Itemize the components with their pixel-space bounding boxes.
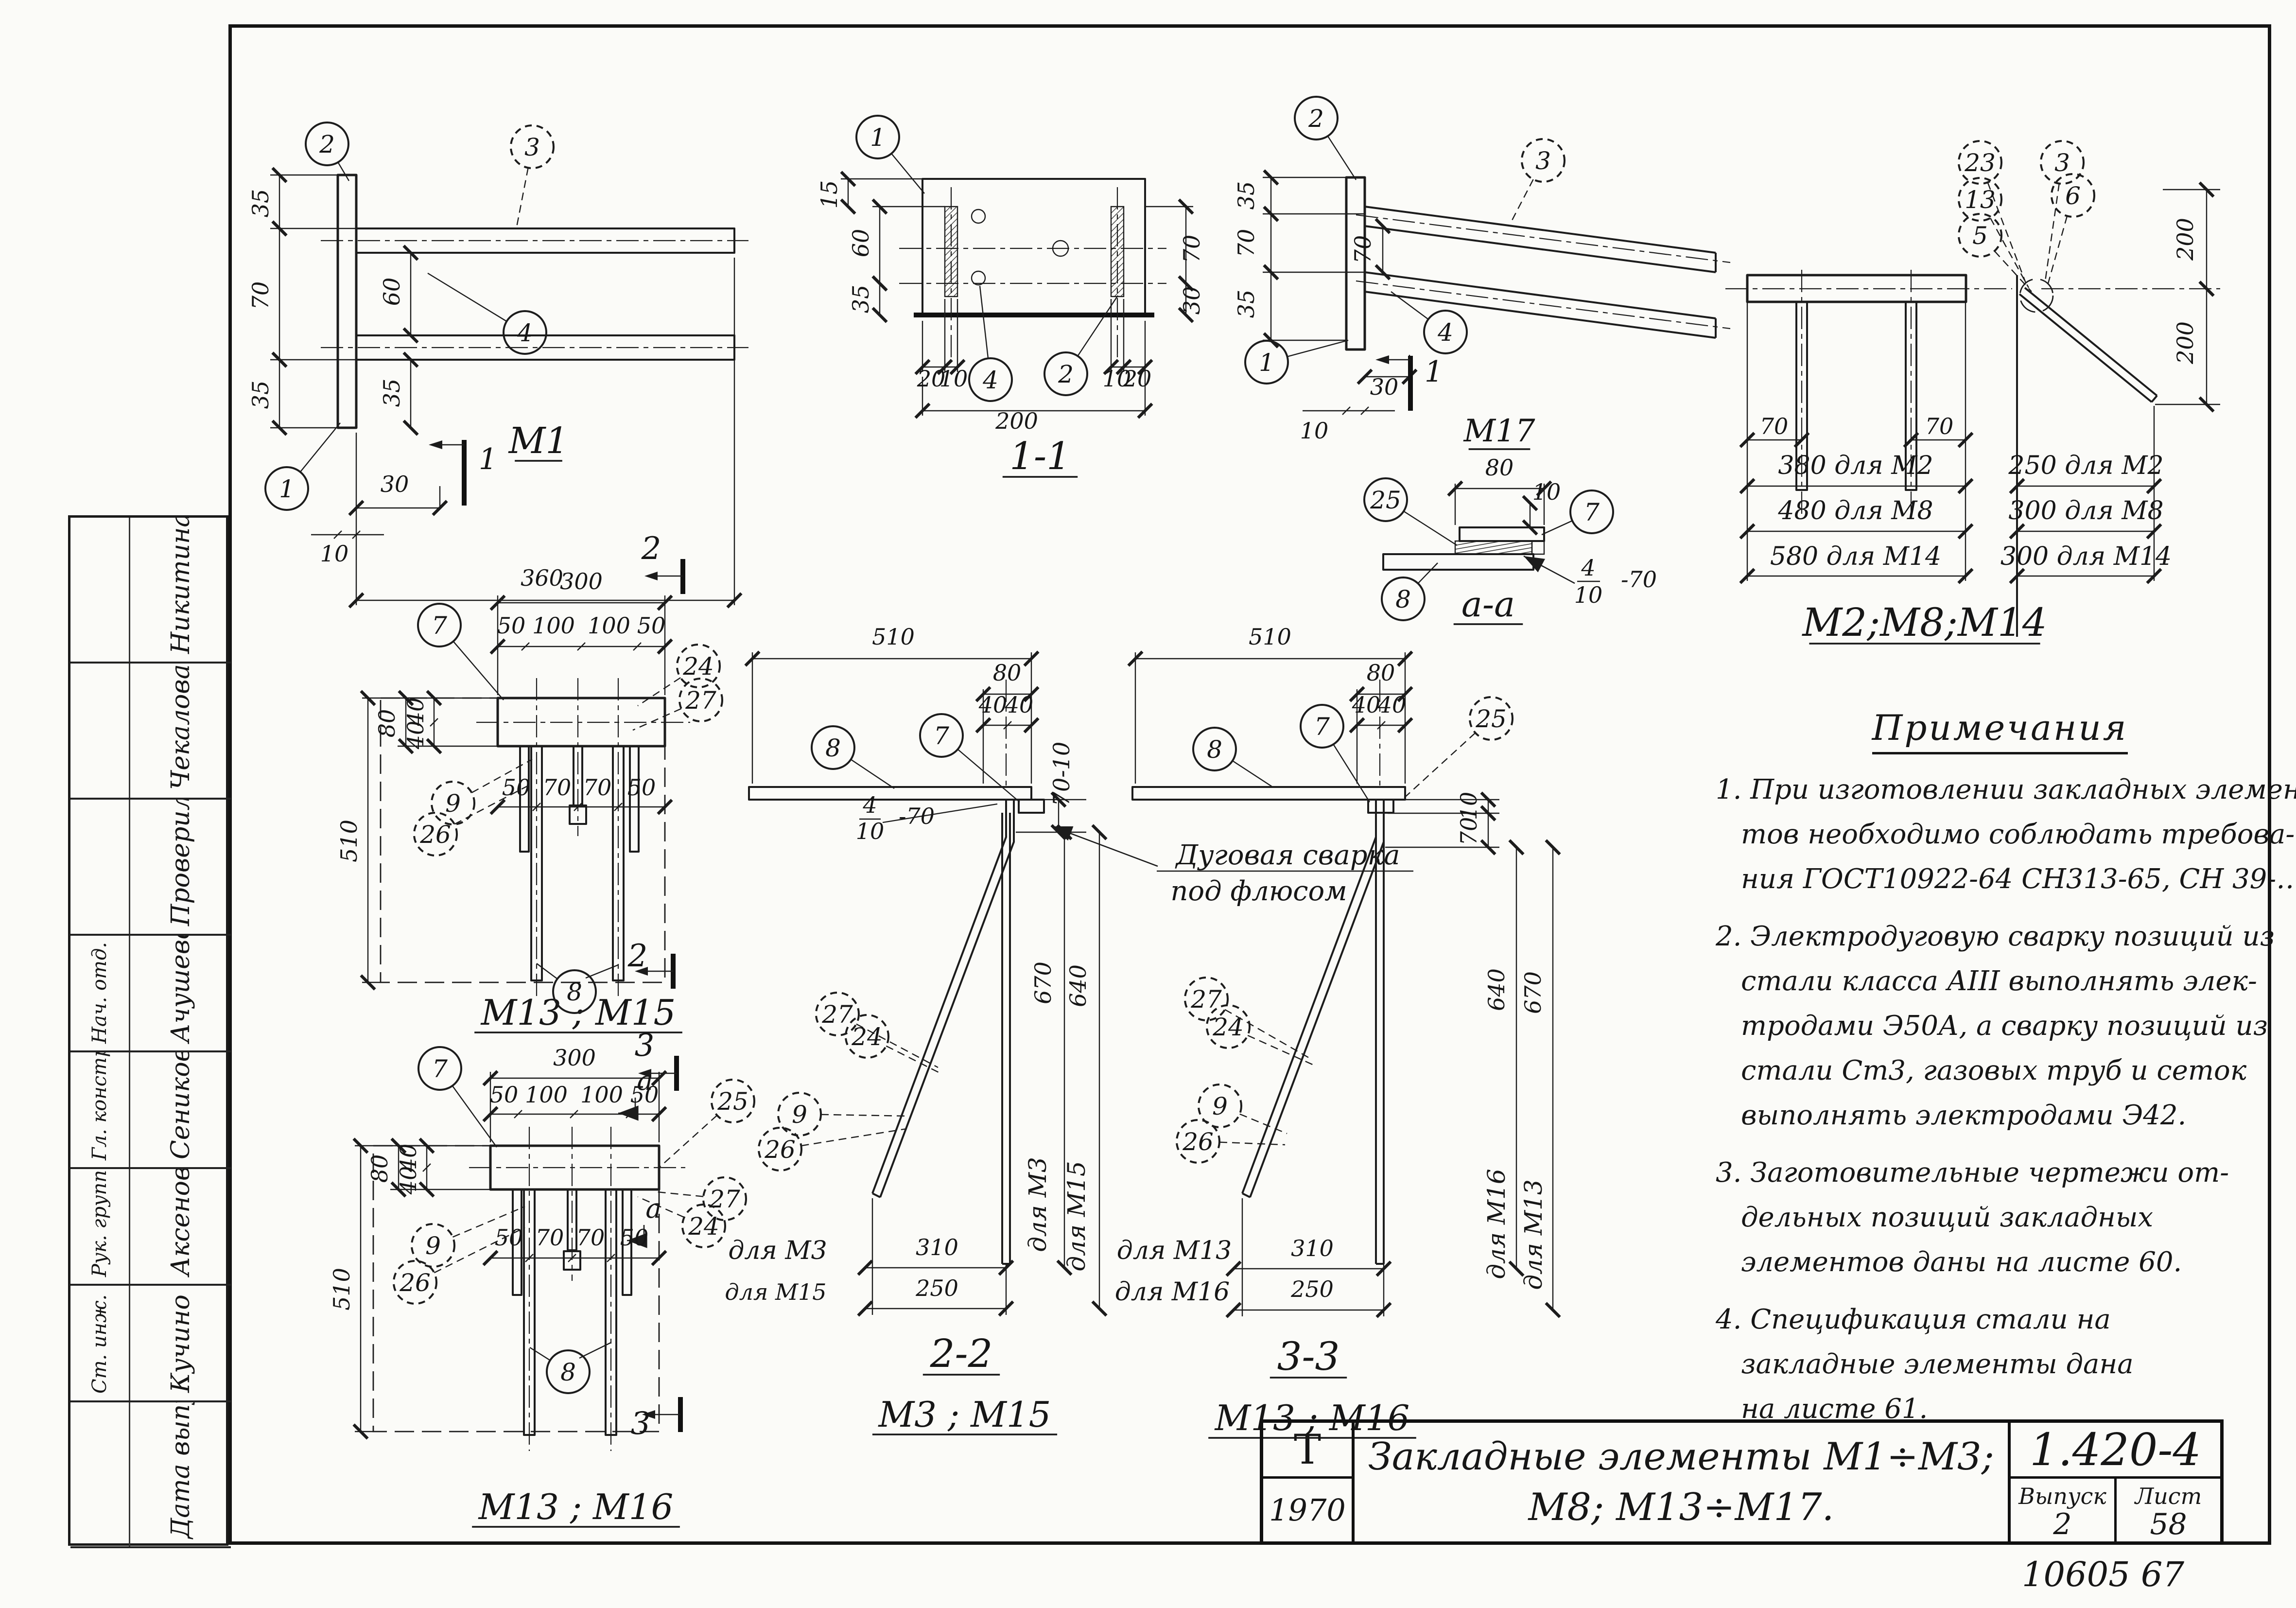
callout-number: 7 (1314, 713, 1330, 741)
archive-number: 10605 67 (2022, 1555, 2184, 1594)
dim-label: 100 (580, 1082, 623, 1108)
callout-leader (633, 709, 681, 730)
dim-label: 1-1 (1009, 435, 1071, 478)
callout-leader (453, 641, 504, 700)
dim-label: для М13 (1117, 1236, 1232, 1265)
dim-label: 100 (588, 612, 630, 639)
dim-label: 4 (1581, 555, 1595, 581)
note-line: закладные элементы дана (1716, 1342, 2284, 1387)
dim-label: 70 (1179, 235, 1205, 263)
dim-label: 40 (1005, 692, 1034, 718)
dim-label: 310 (916, 1234, 958, 1260)
callout-number: 27 (821, 1000, 853, 1029)
drawing-title: Закладные элементы М1÷М3; М8; М13÷М17. (1355, 1423, 2008, 1541)
callout-leader (958, 750, 1020, 802)
dim-label: 80 (1485, 454, 1514, 481)
title-block-left: Т 1970 (1263, 1423, 1355, 1541)
dim-label: -70 (1621, 566, 1657, 593)
sheet-value: 58 (2150, 1510, 2187, 1538)
dim-label: 70 (576, 1224, 605, 1251)
dim-label: 10 (1300, 418, 1329, 444)
note-line: ния ГОСТ10922-64 СН313-65, СН 39-… (1716, 857, 2284, 902)
dim-label: 640 (1065, 964, 1091, 1007)
callout-number: 3 (1535, 147, 1551, 175)
note-line: 4. Спецификация стали на (1716, 1297, 2284, 1342)
dim-label: 3-3 (1277, 1334, 1340, 1379)
callout-number: 2 (1308, 105, 1324, 133)
note-line: выполнять электродами Э42. (1716, 1093, 2284, 1138)
callout-number: 5 (1972, 222, 1988, 250)
dim-label: 70 (1760, 413, 1789, 439)
dim-label: 510 (1249, 624, 1291, 650)
dim-label: 15 (816, 180, 842, 209)
stamp-letter: Т (1263, 1423, 1352, 1479)
dim-label: 60 (848, 229, 874, 258)
dim-label: 20 (1123, 366, 1152, 392)
drawing-section-2-2: 51080404070-10410-70670640для М3для М15д… (725, 624, 1413, 1435)
dim-label: 2 (627, 938, 648, 974)
dim-label: 1 (479, 442, 497, 476)
notes-heading: Примечания (1716, 707, 2284, 748)
dim-label: 40 (1377, 692, 1407, 718)
drawing-title-line2: М8; М13÷М17. (1529, 1482, 1834, 1533)
callout-leader (1542, 521, 1572, 535)
dim-label: для М15 (1062, 1161, 1091, 1271)
note-line: элементов даны на листе 60. (1716, 1240, 2284, 1285)
dim-label: М13 ; М16 (478, 1486, 674, 1527)
dim-label: 30 (1179, 286, 1205, 315)
dim-label: 3 (631, 1406, 651, 1442)
note-line: тродами Э50А, а сварку позиций из (1716, 1004, 2284, 1049)
callout-number: 27 (709, 1185, 740, 1213)
dim-label: 40 (395, 1166, 421, 1195)
dim-label: 35 (848, 285, 874, 314)
dim-label: 200 (995, 408, 1038, 434)
note-line: 3. Заготовительные чертежи от- (1716, 1151, 2284, 1195)
callout-leader (1333, 744, 1370, 802)
note-line: 1. При изготовлении закладных элемен- (1716, 768, 2284, 812)
callout-leader (2047, 216, 2067, 287)
drawing-title-line1: Закладные элементы М1÷М3; (1368, 1432, 1994, 1482)
note-line: стали класса АIII выполнять элек- (1716, 959, 2284, 1004)
callout-leader (659, 1115, 717, 1168)
dim-label: для М16 (1482, 1169, 1511, 1279)
callout-leader (1512, 179, 1533, 221)
dim-label: 200 (2172, 321, 2198, 365)
dim-label: 50 (620, 1224, 649, 1251)
callout-number: 9 (792, 1101, 807, 1129)
issue-label: Выпуск (2018, 1482, 2106, 1510)
dim-label: 50 (497, 612, 526, 639)
dim-label: Дуговая сварка (1175, 839, 1400, 871)
dim-label: 10 (856, 818, 885, 844)
dim-label: 10 (320, 541, 349, 567)
sheet-label: Лист (2135, 1482, 2202, 1510)
callout-number: 26 (419, 821, 451, 849)
callout-number: 9 (445, 789, 461, 818)
callout-number: 4 (517, 319, 533, 347)
dim-label: 510 (329, 1268, 355, 1311)
callout-leader (300, 423, 340, 472)
callout-leader (338, 162, 349, 181)
dim-label: для М13 (1519, 1179, 1548, 1290)
dim-label: 640 (1483, 968, 1510, 1011)
callout-number: 8 (560, 1358, 576, 1386)
dim-label: 35 (1233, 290, 1259, 318)
callout-number: 27 (1190, 985, 1222, 1014)
dim-label: М1 (508, 420, 569, 462)
callout-leader (891, 154, 924, 193)
dim-label: 100 (532, 612, 575, 639)
callout-leader (530, 1347, 550, 1360)
dim-label: 10 (939, 366, 968, 392)
callout-number: 3 (2054, 149, 2070, 177)
dim-label: 50 (627, 774, 656, 801)
note-line: тов необходимо соблюдать требова- (1716, 812, 2284, 857)
callout-number: 2 (319, 130, 335, 158)
dim-label: под флюсом (1170, 875, 1347, 907)
drawing-plan-m13-m15: 22300501001005040408051050707050М13 ; М1… (336, 531, 722, 1033)
dim-label: 670 (1030, 961, 1056, 1004)
dim-label: 300 (560, 568, 603, 594)
dim-label: 360 (521, 565, 563, 591)
dim-label: 40 (978, 692, 1008, 718)
note-line: стали Ст3, газовых труб и сеток (1716, 1049, 2284, 1093)
dim-label: М17 (1463, 413, 1535, 449)
drawing-m2-side-view: 35703570301011234 (1233, 97, 1730, 444)
callout-number: 8 (825, 734, 841, 762)
notes-block: Примечания 1. При изготовлении закладных… (1716, 707, 2284, 1432)
dim-label: 70 (543, 774, 572, 801)
callout-number: 4 (1437, 318, 1453, 347)
callout-number: 1 (870, 123, 886, 152)
dim-label: 250 для М2 (2008, 451, 2163, 480)
callout-leader (980, 286, 988, 358)
dim-label: а (645, 1193, 661, 1224)
callout-leader (1995, 251, 2032, 292)
notes-list: 1. При изготовлении закладных элемен-тов… (1716, 768, 2284, 1432)
callout-number: 8 (1207, 735, 1222, 764)
callout-leader (516, 168, 528, 229)
note-line: 2. Электродуговую сварку позиций из (1716, 914, 2284, 959)
dim-label: 80 (1367, 660, 1395, 686)
callout-number: 25 (1475, 705, 1507, 733)
callout-leader (1233, 761, 1273, 787)
dim-label: 580 для М14 (1770, 542, 1941, 571)
dim-label: 80 (993, 660, 1022, 686)
callout-number: 26 (399, 1269, 431, 1297)
drawing-plan-m13-m16: 33аа300501001005040408051050707050М13 ; … (329, 1028, 754, 1527)
callout-leader (657, 1192, 703, 1197)
drawing-section-3-3: 5108040401070640670для М16для М13для М13… (1115, 624, 1553, 1438)
sheet-cell: Лист 58 (2117, 1479, 2220, 1541)
dim-label: для М16 (1115, 1277, 1230, 1307)
dim-label: 1 (1425, 355, 1443, 389)
dim-label: 670 (1520, 971, 1546, 1014)
dim-label: 300 для М14 (2000, 542, 2172, 571)
callout-number: 26 (1182, 1128, 1214, 1156)
callout-number: 13 (1965, 186, 1996, 214)
callout-leader (1391, 292, 1428, 319)
dim-label: для М15 (725, 1279, 826, 1305)
dim-label: М2;М8;М14 (1801, 600, 2047, 645)
dim-label: 70-10 (1048, 742, 1075, 806)
drawing-section-1-1: 1560357030201010202001-1142 (816, 116, 1205, 478)
callout-leader (638, 678, 680, 706)
callout-number: 3 (524, 133, 540, 161)
dim-label: 10 (1456, 792, 1482, 821)
year-label: 1970 (1263, 1479, 1352, 1541)
drawing-m17-detail: М178010410-70а-а2578 (1364, 413, 1657, 625)
dim-label: 70 (583, 774, 612, 801)
dim-label: 480 для М8 (1777, 496, 1933, 525)
dim-label: 35 (1233, 181, 1259, 210)
callout-number: 24 (1212, 1013, 1244, 1041)
callout-leader (1287, 340, 1348, 357)
dim-label: 3 (635, 1028, 655, 1064)
callout-number: 25 (717, 1087, 748, 1116)
callout-number: 9 (1212, 1092, 1228, 1120)
dim-label: 10 (1574, 582, 1603, 608)
scanned-drawing-sheet: { "sheet": { "title_block": { "stamp_let… (0, 0, 2296, 1608)
dim-label: 10 (1532, 479, 1561, 505)
dim-label: 200 (2172, 218, 2198, 261)
issue-cell: Выпуск 2 (2011, 1479, 2117, 1541)
issue-value: 2 (2053, 1510, 2071, 1538)
callout-leader (428, 273, 506, 321)
dim-label: 35 (247, 381, 274, 409)
callout-leader (1404, 511, 1457, 545)
dim-label: а-а (1461, 584, 1515, 625)
note-line: дельных позиций закладных (1716, 1195, 2284, 1240)
drawing-m2-m8-m14: 7070380 для М2480 для М8580 для М14250 д… (1725, 141, 2220, 645)
dim-label: 510 (336, 820, 362, 862)
dim-label: 70 (536, 1224, 564, 1251)
dim-label: 60 (379, 278, 405, 306)
title-block: Т 1970 Закладные элементы М1÷М3; М8; М13… (1260, 1419, 2224, 1545)
callout-number: 8 (567, 978, 582, 1006)
callout-number: 7 (934, 722, 949, 750)
callout-number: 7 (432, 612, 447, 640)
callout-number: 24 (851, 1023, 883, 1051)
callout-number: 7 (432, 1055, 448, 1083)
dim-label: для М3 (728, 1236, 827, 1265)
callout-number: 27 (685, 686, 716, 715)
title-block-right: 1.420-4 Выпуск 2 Лист 58 (2008, 1423, 2220, 1541)
drawing-m1: 357035603530103601М12314 (247, 122, 748, 605)
dim-label: 40 (402, 721, 429, 750)
dim-label: 50 (495, 1224, 523, 1251)
dim-label: -70 (899, 803, 935, 829)
dim-label: 70 (1456, 817, 1482, 846)
dim-label: 4 (862, 792, 877, 818)
callout-number: 24 (682, 652, 714, 681)
dim-label: М3 ; М15 (878, 1394, 1051, 1435)
callout-number: 1 (279, 475, 295, 503)
dim-label: 250 (915, 1275, 958, 1301)
callout-leader (1402, 733, 1475, 800)
callout-leader (1219, 1142, 1285, 1145)
dim-label: 70 (1233, 229, 1259, 258)
callout-leader (1328, 136, 1356, 180)
callout-number: 25 (1370, 486, 1401, 514)
callout-number: 26 (764, 1136, 796, 1164)
callout-number: 7 (1584, 498, 1600, 526)
callout-leader (537, 963, 557, 979)
dim-label: 30 (381, 471, 409, 497)
dim-label: 35 (247, 189, 274, 218)
callout-number: 9 (425, 1232, 441, 1260)
callout-number: 23 (1964, 149, 1996, 177)
dim-label: 40 (1352, 692, 1381, 718)
dim-label: 300 для М8 (2008, 496, 2163, 525)
dim-label: 2 (641, 531, 661, 567)
callout-leader (821, 1115, 909, 1116)
dim-label: 50 (490, 1082, 519, 1108)
dim-label: 30 (1370, 374, 1399, 400)
dim-label: для М3 (1024, 1157, 1052, 1252)
dim-label: 80 (366, 1154, 393, 1183)
callout-number: 4 (982, 366, 998, 394)
callout-number: 6 (2065, 182, 2081, 210)
dim-label: 70 (247, 281, 274, 310)
dim-label: 50 (637, 612, 666, 639)
callout-number: 1 (1259, 349, 1274, 377)
dim-label: 510 (872, 624, 915, 650)
dim-label: 310 (1291, 1235, 1334, 1261)
dim-label: 380 для М2 (1778, 451, 1933, 480)
series-code: 1.420-4 (2011, 1423, 2220, 1479)
dim-label: 100 (525, 1082, 568, 1108)
callout-number: 24 (688, 1212, 719, 1241)
callout-leader (851, 759, 894, 788)
callout-number: 2 (1058, 360, 1074, 388)
dim-label: 70 (1350, 235, 1376, 264)
callout-leader (1078, 296, 1118, 356)
dim-label: 50 (502, 774, 531, 801)
callout-leader (1418, 563, 1438, 583)
dim-label: 35 (379, 379, 405, 407)
dim-label: 50 (630, 1082, 659, 1108)
dim-label: 70 (1925, 413, 1954, 439)
dim-label: 2-2 (930, 1331, 993, 1376)
dim-label: 300 (553, 1045, 596, 1071)
dim-label: 250 (1290, 1276, 1334, 1302)
callout-number: 8 (1395, 585, 1411, 613)
dim-label: 80 (374, 709, 400, 738)
